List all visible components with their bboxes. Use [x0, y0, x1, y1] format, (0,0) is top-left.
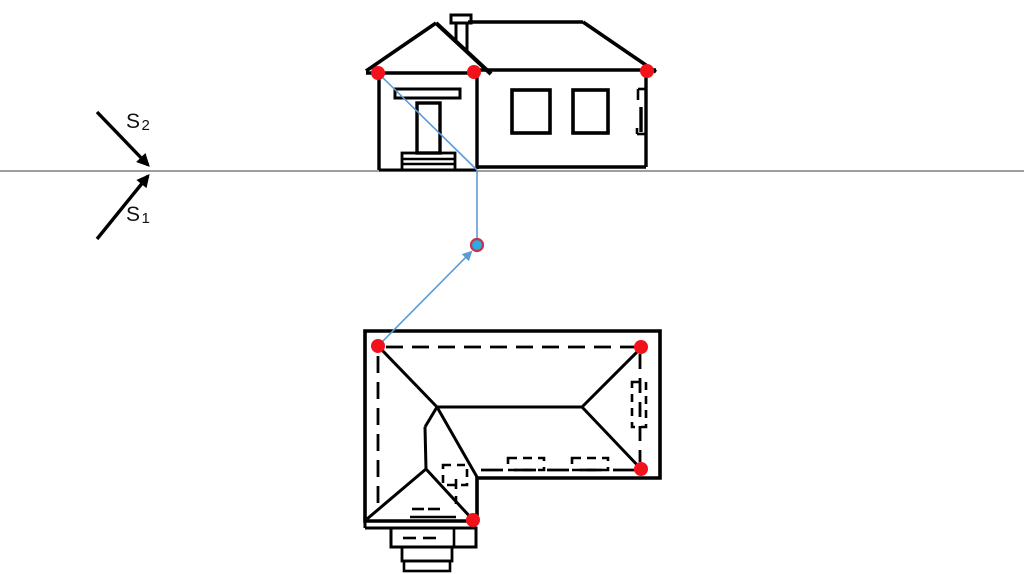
window-plan-bottom-mark-2 — [572, 458, 608, 470]
window-left — [512, 90, 550, 133]
porch-roof-left-slope — [366, 23, 436, 71]
porch-roof-right-slope — [436, 23, 491, 74]
station-label-s2-main: S — [126, 110, 141, 133]
station-label-s1-main: S — [126, 203, 141, 226]
plan-step-2 — [402, 547, 452, 561]
transom-window — [395, 89, 460, 98]
window-right — [573, 90, 608, 133]
entry-steps — [402, 153, 455, 170]
valley-left — [425, 407, 437, 427]
corner-point-plan-bottom-right — [634, 462, 648, 476]
diagram-canvas — [0, 0, 1024, 574]
station-point — [471, 239, 483, 251]
corner-point-plan-top-right — [634, 340, 648, 354]
corner-point-elevation-middle — [467, 65, 481, 79]
corner-point-plan-top-left — [371, 339, 385, 353]
porch-hip-left — [367, 469, 426, 519]
station-label-s1-sub: 1 — [142, 210, 151, 227]
hip-top-left — [379, 347, 437, 407]
corner-point-elevation-left — [371, 66, 385, 80]
station-label-s2-sub: 2 — [142, 117, 151, 134]
hip-bottom-right — [582, 407, 641, 469]
chimney-cap — [451, 15, 471, 23]
window-plan-bottom-mark-1 — [508, 458, 544, 470]
station-label-s2: S2 — [126, 111, 149, 132]
roof-eave-outline — [365, 331, 660, 521]
plan-step-3 — [404, 561, 450, 571]
corner-point-elevation-right — [640, 64, 654, 78]
porch-ridge — [425, 427, 426, 469]
station-label-s1: S1 — [126, 204, 149, 225]
perspective-construction-diagram: S2 S1 — [0, 0, 1024, 574]
entry-door — [417, 103, 440, 153]
corner-point-plan-porch — [466, 513, 480, 527]
